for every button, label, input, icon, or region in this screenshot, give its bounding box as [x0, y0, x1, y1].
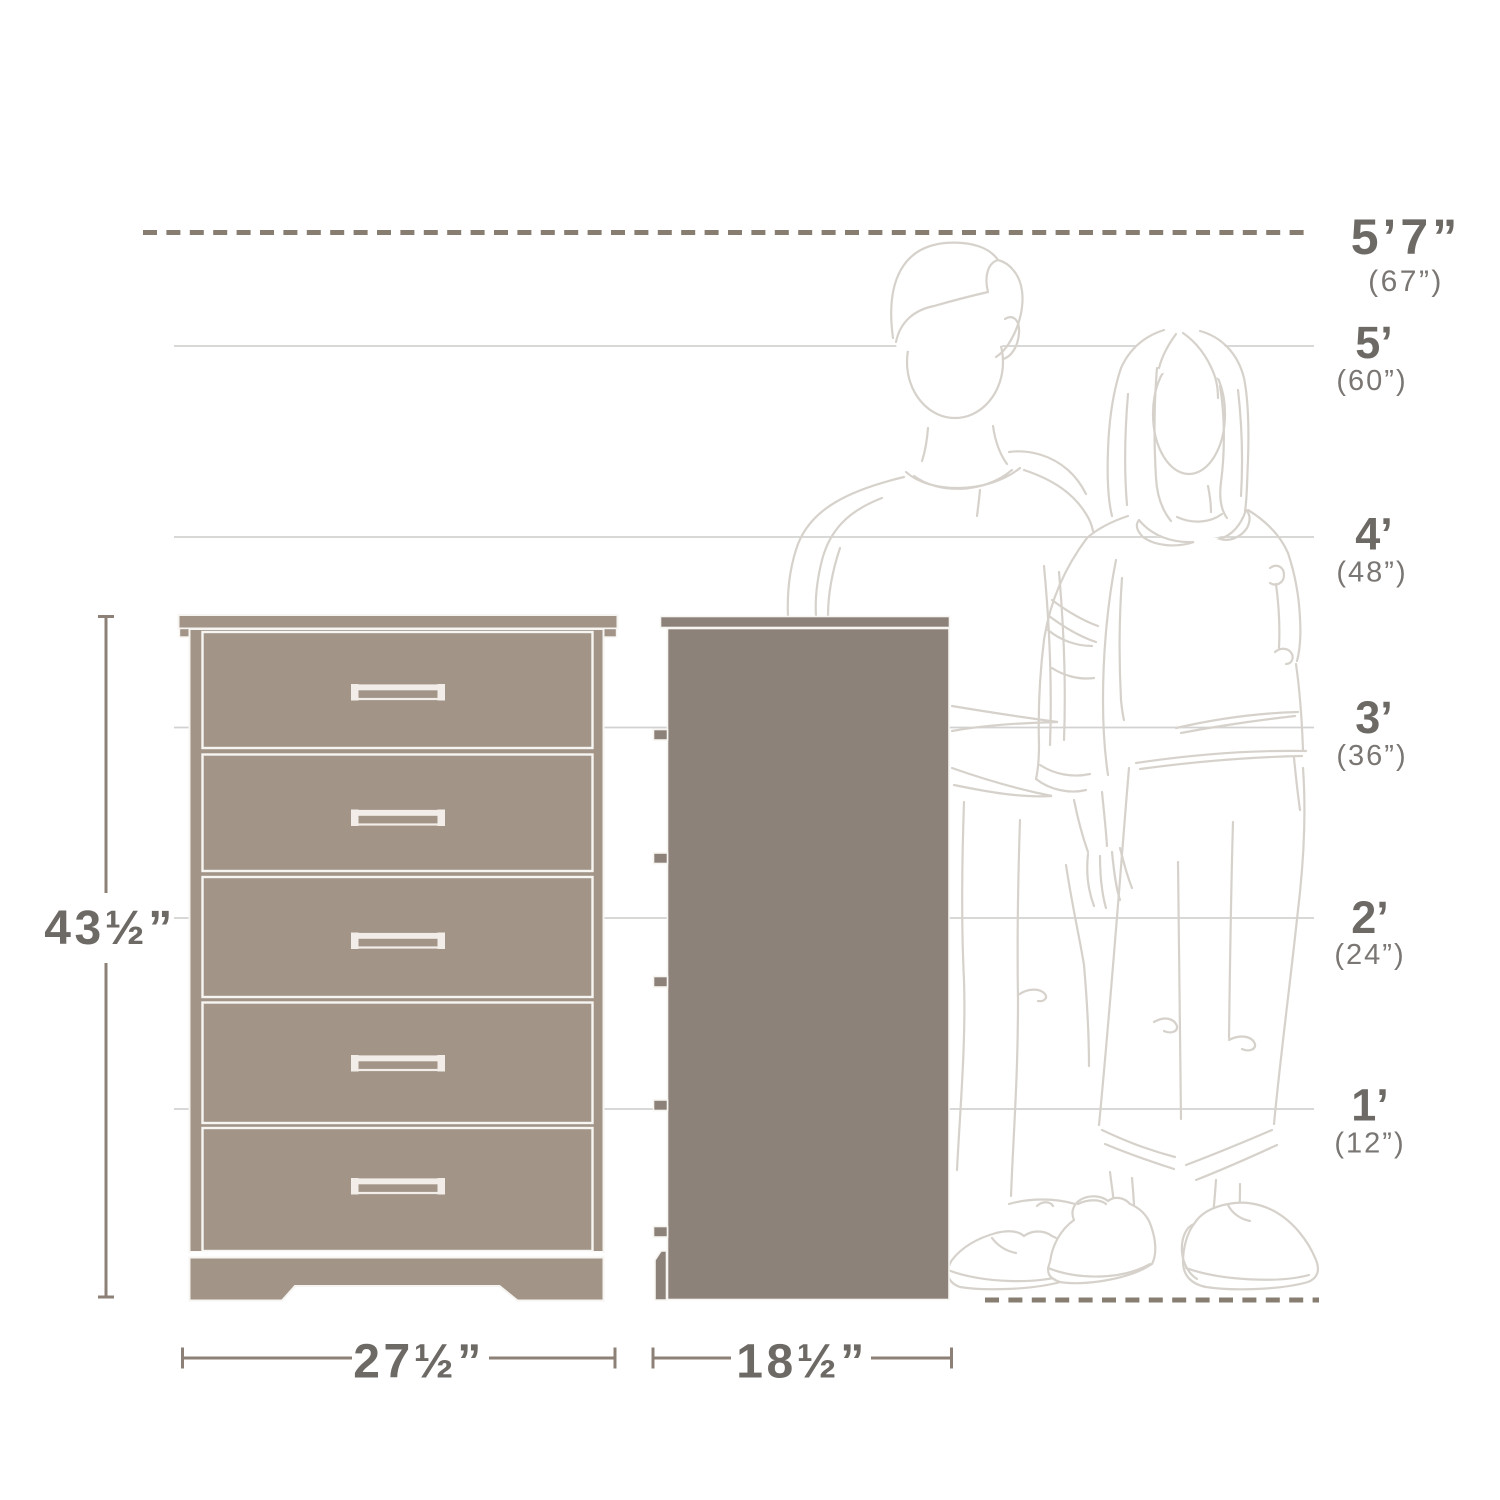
svg-text:3’: 3’ — [1355, 692, 1393, 743]
svg-text:(12”): (12”) — [1334, 1128, 1405, 1160]
svg-text:5’7”: 5’7” — [1351, 209, 1462, 265]
svg-text:(67”): (67”) — [1368, 265, 1444, 298]
svg-text:43½”: 43½” — [44, 902, 175, 955]
svg-text:(48”): (48”) — [1336, 557, 1407, 589]
svg-text:5’: 5’ — [1355, 317, 1393, 368]
svg-text:27½”: 27½” — [353, 1336, 484, 1389]
svg-text:(60”): (60”) — [1336, 365, 1407, 397]
svg-text:(36”): (36”) — [1336, 740, 1407, 772]
svg-text:2’: 2’ — [1351, 892, 1389, 943]
svg-text:18½”: 18½” — [736, 1336, 867, 1389]
svg-text:4’: 4’ — [1355, 509, 1393, 560]
svg-text:1’: 1’ — [1351, 1080, 1389, 1131]
svg-text:(24”): (24”) — [1334, 939, 1405, 971]
